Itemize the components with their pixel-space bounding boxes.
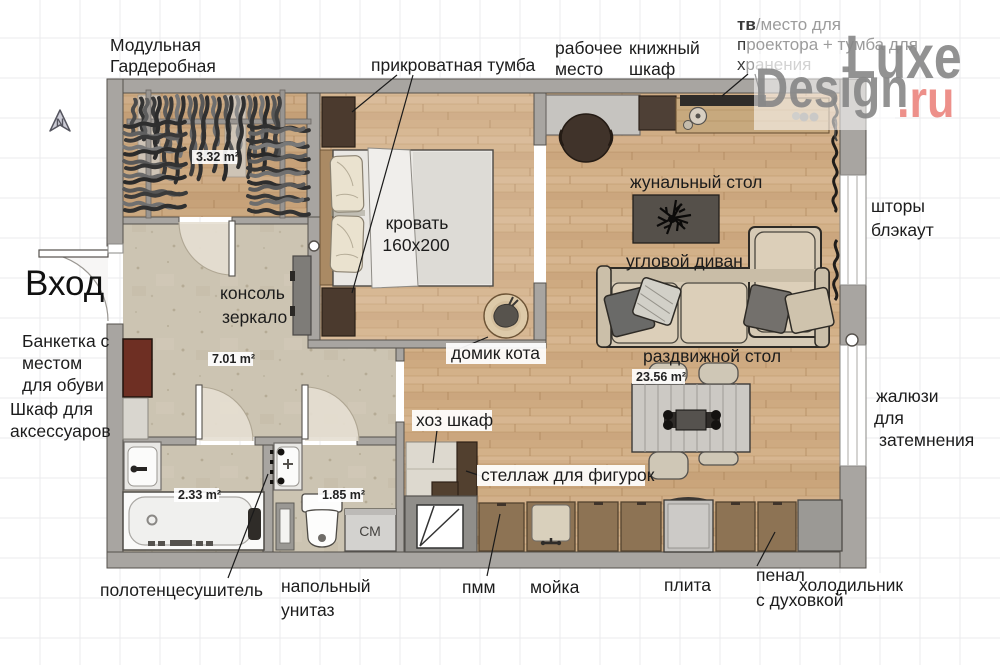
svg-text:рабочее: рабочее: [555, 38, 622, 58]
svg-text:блэкаут: блэкаут: [871, 220, 934, 240]
svg-text:Гардеробная: Гардеробная: [110, 56, 216, 76]
svg-text:аксессуаров: аксессуаров: [10, 421, 111, 441]
svg-text:тв/место для: тв/место для: [737, 15, 841, 34]
svg-text:2.33 m²: 2.33 m²: [178, 488, 221, 502]
svg-text:пмм: пмм: [462, 577, 496, 597]
svg-text:напольный: напольный: [281, 576, 371, 596]
svg-text:для: для: [874, 408, 904, 428]
svg-text:зеркало: зеркало: [222, 307, 287, 327]
svg-text:3.32 m²: 3.32 m²: [196, 150, 239, 164]
svg-text:Шкаф для: Шкаф для: [10, 399, 93, 419]
svg-text:место: место: [555, 59, 603, 79]
svg-text:плита: плита: [664, 575, 711, 595]
svg-text:жалюзи: жалюзи: [876, 386, 939, 406]
svg-text:жунальный стол: жунальный стол: [630, 172, 762, 192]
svg-text:унитаз: унитаз: [281, 600, 335, 620]
svg-text:прикроватная тумба: прикроватная тумба: [371, 55, 536, 75]
svg-text:пенал: пенал: [756, 565, 805, 585]
svg-text:23.56 m²: 23.56 m²: [636, 370, 686, 384]
svg-text:N: N: [56, 117, 64, 129]
svg-text:шкаф: шкаф: [629, 59, 675, 79]
svg-text:160х200: 160х200: [382, 235, 449, 255]
svg-text:для обуви: для обуви: [22, 375, 104, 395]
svg-text:книжный: книжный: [629, 38, 700, 58]
svg-text:Design: Design: [755, 57, 908, 119]
svg-text:7.01 m²: 7.01 m²: [212, 352, 255, 366]
svg-text:домик кота: домик кота: [451, 343, 540, 363]
svg-text:с духовкой: с духовкой: [756, 590, 844, 610]
svg-text:1.85 m²: 1.85 m²: [322, 488, 365, 502]
svg-text:консоль: консоль: [220, 283, 285, 303]
svg-text:Банкетка с: Банкетка с: [22, 331, 110, 351]
svg-text:стеллаж для фигурок: стеллаж для фигурок: [481, 465, 655, 485]
svg-text:раздвижной стол: раздвижной стол: [643, 346, 781, 366]
svg-text:.ru: .ru: [897, 71, 955, 129]
svg-text:затемнения: затемнения: [879, 430, 974, 450]
svg-text:Вход: Вход: [25, 264, 104, 303]
svg-text:местом: местом: [22, 353, 82, 373]
svg-text:Модульная: Модульная: [110, 35, 201, 55]
svg-text:мойка: мойка: [530, 577, 580, 597]
svg-text:СМ: СМ: [359, 523, 381, 539]
svg-text:угловой диван: угловой диван: [626, 251, 743, 271]
svg-text:полотенцесушитель: полотенцесушитель: [100, 580, 263, 600]
svg-text:хоз шкаф: хоз шкаф: [416, 410, 493, 430]
svg-text:кровать: кровать: [386, 213, 449, 233]
svg-text:шторы: шторы: [871, 196, 925, 216]
